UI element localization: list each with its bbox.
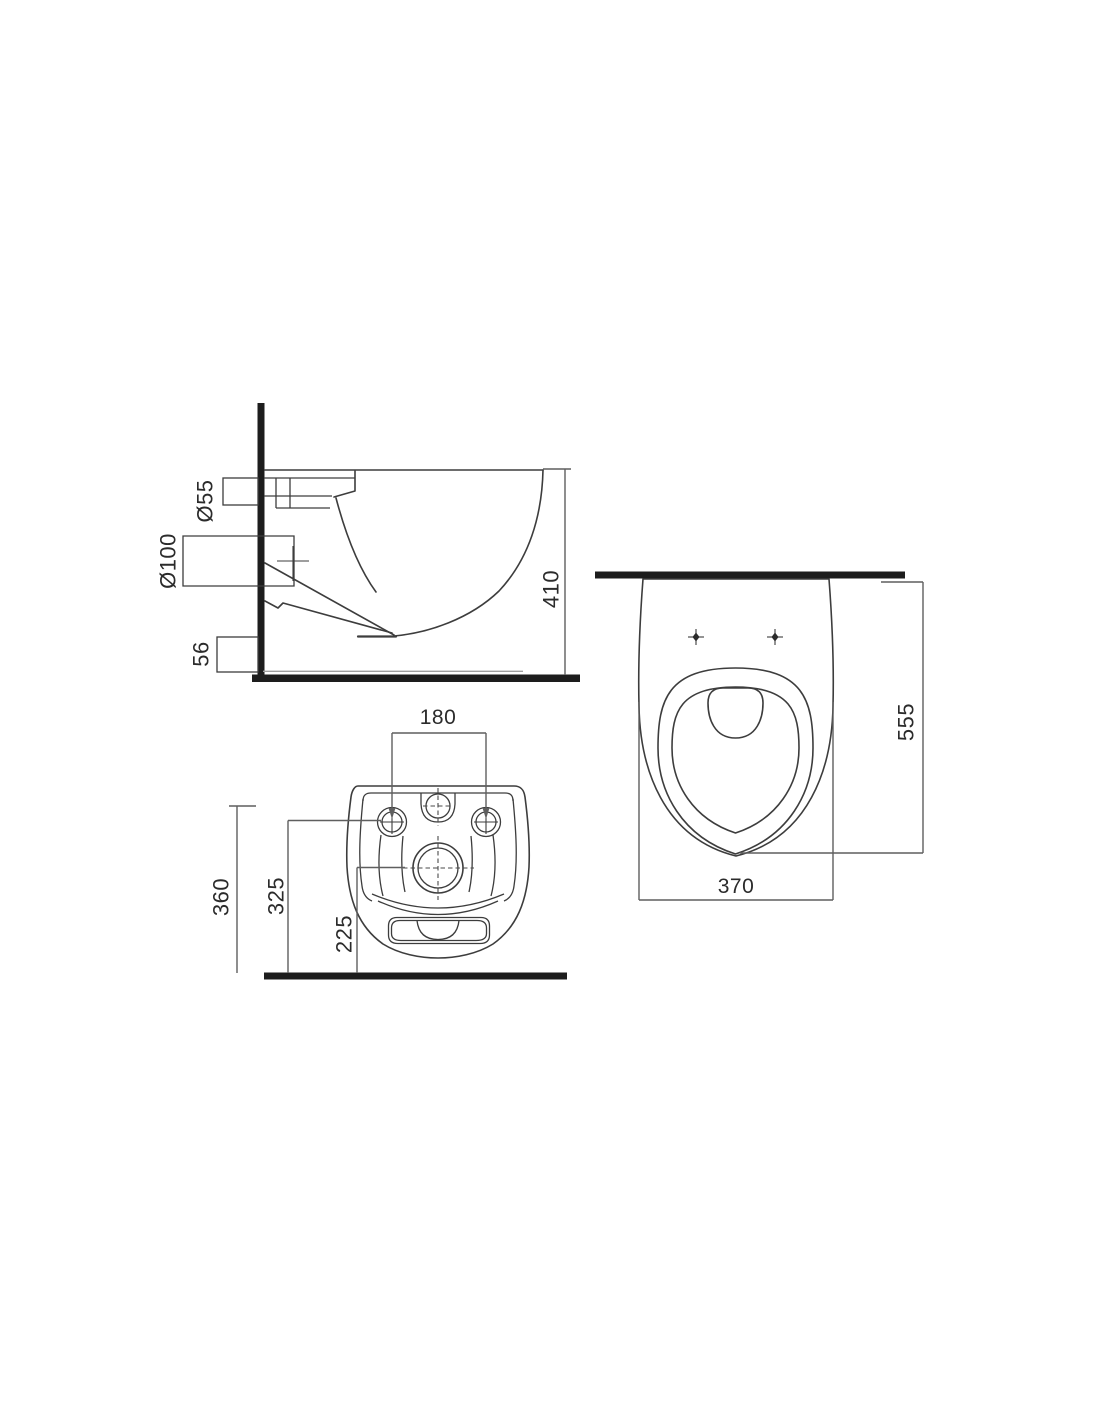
dim-label-overall-depth: 555 [894,703,919,741]
side-floor-bar [252,675,580,683]
rear-strap-left-outer [379,835,383,896]
top-view: 370 555 [595,572,923,901]
top-toilet-outline [639,579,834,856]
dim-label-drain-height: 225 [332,915,357,953]
top-wall-bar [595,572,905,579]
profile-upper-outlet-diagonal [265,563,394,635]
rear-strap-left-inner [402,836,405,892]
top-fixing-cross-left [688,629,704,645]
rear-strap-right-inner [469,836,472,892]
profile-bowl-curve [394,470,543,636]
dim-label-drain-diameter: Ø100 [156,533,181,589]
side-toilet-profile [183,470,543,637]
rear-view: 180 360 325 225 [209,706,567,980]
technical-drawing-page: Ø55 Ø100 56 410 370 555 [0,0,1100,1422]
dim-label-inlet-height: 360 [209,878,234,916]
rear-mouth-inner [392,921,487,941]
rear-inner-left-side [360,799,372,901]
rear-inner-right-side [504,799,516,901]
dim-label-hole-spacing: 180 [420,706,457,729]
toilet-dimension-drawing: Ø55 Ø100 56 410 370 555 [0,0,1100,1422]
dim-box-55 [223,478,258,505]
dim-label-outlet-bottom-height: 56 [189,641,214,666]
dim-180-right-arrow [483,808,490,819]
top-fixing-cross-right [767,629,783,645]
profile-lower-outlet-diagonal [265,601,392,633]
rear-mouth-semicircle [417,921,459,940]
side-view: Ø55 Ø100 56 410 [156,403,580,682]
dim-label-overall-height: 410 [539,570,564,608]
rear-floor-bar [264,973,567,980]
dim-label-overall-width: 370 [718,875,755,898]
dim-180-left-arrow [389,808,396,819]
dim-label-outlet-diameter: Ø55 [193,479,218,522]
cross-center [772,633,779,642]
dim-box-56 [217,637,258,672]
profile-rim-notch [334,471,355,497]
profile-inner-bowl-curve [336,498,376,592]
rear-strap-right-outer [491,835,495,896]
cross-center [693,633,700,642]
dim-label-fixing-holes-height: 325 [264,877,289,915]
top-flush-hole [708,688,763,738]
top-seat-ring-inner [672,687,799,833]
